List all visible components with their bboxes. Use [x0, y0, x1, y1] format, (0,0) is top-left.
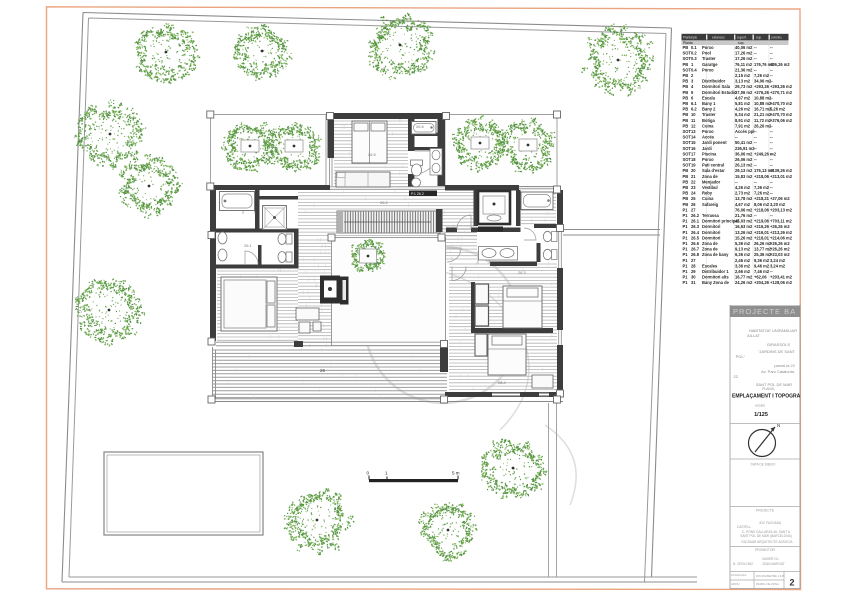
svg-text:26,06 m2: 26,06 m2	[735, 157, 753, 162]
svg-text:7,26 m2: 7,26 m2	[754, 73, 770, 78]
svg-text:29,73 m2: 29,73 m2	[735, 84, 753, 89]
svg-text:PB: PB	[683, 84, 689, 89]
svg-text:PROJECTE: PROJECTE	[756, 509, 775, 513]
svg-text:26.3: 26.3	[691, 224, 700, 229]
svg-text:sup.: sup.	[756, 35, 762, 39]
svg-text:CASTELL: CASTELL	[737, 525, 751, 529]
svg-text:26.2: 26.2	[691, 213, 700, 218]
svg-text:+213,26 m2: +213,26 m2	[770, 230, 793, 235]
svg-text:PB: PB	[683, 179, 689, 184]
svg-text:14: 14	[691, 135, 696, 140]
svg-text:9,46 m2: 9,46 m2	[754, 263, 770, 268]
svg-text:7,36 m2: 7,36 m2	[754, 185, 770, 190]
svg-text:P1: P1	[683, 230, 689, 235]
svg-text:4,67 m2: 4,67 m2	[735, 95, 751, 100]
svg-text:23: 23	[691, 185, 696, 190]
svg-text:Garatge: Garatge	[702, 62, 718, 67]
svg-text:+218,21: +218,21	[754, 196, 770, 201]
svg-text:+62,06: +62,06	[754, 275, 767, 280]
svg-text:PB: PB	[683, 79, 689, 84]
svg-text:16,63 m2: 16,63 m2	[735, 224, 753, 229]
svg-text:6,36 m2: 6,36 m2	[735, 252, 751, 257]
svg-text:+470,70 m2: +470,70 m2	[770, 112, 793, 117]
svg-text:6.1: 6.1	[691, 101, 697, 106]
svg-text:21,76 m2: 21,76 m2	[735, 213, 753, 218]
svg-text:P1: P1	[683, 241, 689, 246]
svg-text:Botiga: Botiga	[702, 118, 715, 123]
svg-text:Traster: Traster	[702, 112, 716, 117]
svg-text:Porxo: Porxo	[702, 67, 714, 72]
svg-text:N. GROU 982: N. GROU 982	[733, 562, 753, 566]
svg-text:2,15 m2: 2,15 m2	[735, 73, 751, 78]
svg-text:26.2: 26.2	[380, 200, 389, 205]
svg-text:7,26 m2: 7,26 m2	[754, 191, 770, 196]
svg-text:22: 22	[734, 374, 739, 379]
svg-text:13: 13	[691, 129, 696, 134]
svg-text:17: 17	[691, 151, 696, 156]
svg-text:P1: P1	[683, 207, 689, 212]
svg-text:26: 26	[691, 202, 696, 207]
svg-text:12: 12	[691, 123, 696, 128]
svg-text:36,06 m2: 36,06 m2	[735, 151, 753, 156]
svg-text:Zona de: Zona de	[702, 247, 718, 252]
svg-text:PB: PB	[683, 45, 689, 50]
svg-text:PLANOL: PLANOL	[762, 387, 775, 391]
svg-text:DIN MILIMETRE 1:125: DIN MILIMETRE 1:125	[756, 574, 785, 578]
svg-text:26.4: 26.4	[691, 230, 700, 235]
svg-text:constru.: constru.	[771, 35, 782, 39]
svg-text:+216,26: +216,26	[754, 224, 770, 229]
svg-text:8,91 m2: 8,91 m2	[735, 118, 751, 123]
svg-text:31: 31	[691, 280, 696, 285]
svg-text:+470,70 m2: +470,70 m2	[770, 101, 793, 106]
svg-text:Cuina: Cuina	[702, 123, 714, 128]
svg-text:26.1: 26.1	[691, 219, 700, 224]
svg-text:XAVIER GL.: XAVIER GL.	[762, 557, 780, 561]
svg-text:PROMOTOR: PROMOTOR	[755, 548, 775, 552]
svg-text:estances: estances	[712, 35, 725, 39]
svg-text:+703,11 m2: +703,11 m2	[770, 219, 792, 224]
svg-text:26.4: 26.4	[498, 380, 507, 385]
svg-text:+139,26 m2: +139,26 m2	[770, 168, 793, 173]
svg-text:2,66 m2: 2,66 m2	[735, 269, 751, 274]
svg-text:PB: PB	[683, 191, 689, 196]
svg-text:AILLAT: AILLAT	[747, 333, 761, 338]
svg-text:5 m: 5 m	[452, 471, 460, 476]
svg-text:PB: PB	[683, 123, 689, 128]
svg-text:18: 18	[691, 157, 696, 162]
svg-text:Safareig: Safareig	[702, 202, 719, 207]
svg-text:PB: PB	[683, 73, 689, 78]
svg-text:+218,01: +218,01	[754, 235, 770, 240]
svg-text:Accés: Accés	[702, 135, 715, 140]
svg-text:Bany 1: Bany 1	[702, 101, 716, 106]
svg-text:PB: PB	[683, 62, 689, 67]
svg-text:JOAN MARGAT: JOAN MARGAT	[762, 562, 785, 566]
svg-text:30: 30	[691, 275, 696, 280]
svg-text:236,91 m2: 236,91 m2	[735, 146, 755, 151]
svg-text:0.3: 0.3	[691, 56, 697, 61]
svg-text:PB: PB	[683, 90, 689, 95]
svg-text:+214,06 m2: +214,06 m2	[770, 235, 793, 240]
svg-text:SANT POL DE MAR (BARCELONA): SANT POL DE MAR (BARCELONA)	[740, 534, 792, 538]
svg-text:Distribuidor 1: Distribuidor 1	[702, 269, 729, 274]
svg-text:7,46 m2: 7,46 m2	[754, 269, 770, 274]
svg-text:15,26 m2: 15,26 m2	[735, 235, 753, 240]
svg-text:+219,06: +219,06	[754, 219, 770, 224]
svg-text:PB: PB	[683, 174, 689, 179]
svg-text:A3 ESCALA: A3 ESCALA	[731, 573, 746, 577]
svg-text:Distribuidor: Distribuidor	[702, 79, 726, 84]
svg-text:2,46 m2: 2,46 m2	[735, 258, 751, 263]
svg-text:Cuina: Cuina	[702, 196, 714, 201]
svg-text:9,13 m2: 9,13 m2	[735, 247, 751, 252]
svg-text:26.8: 26.8	[691, 252, 700, 257]
svg-text:Zona de: Zona de	[702, 174, 718, 179]
svg-text:21: 21	[691, 174, 696, 179]
svg-text:Escala: Escala	[702, 95, 716, 100]
svg-text:26.6: 26.6	[416, 124, 425, 129]
svg-text:PROJECTE BA: PROJECTE BA	[733, 307, 796, 316]
svg-text:+26,26 m2: +26,26 m2	[770, 247, 790, 252]
svg-text:Porxo: Porxo	[702, 45, 714, 50]
svg-text:17,26 m2: 17,26 m2	[735, 56, 753, 61]
svg-text:+23,03 m2: +23,03 m2	[770, 252, 790, 257]
svg-text:+26,26 m2: +26,26 m2	[770, 224, 790, 229]
svg-text:Dormitori principal: Dormitori principal	[702, 219, 739, 224]
svg-text:+293,26: +293,26	[754, 84, 770, 89]
svg-text:Pool: Pool	[702, 51, 711, 56]
svg-text:+276,06 m2: +276,06 m2	[770, 118, 793, 123]
svg-text:Reby: Reby	[702, 191, 713, 196]
svg-text:16,77 m2: 16,77 m2	[735, 275, 753, 280]
svg-text:28: 28	[691, 263, 696, 268]
svg-text:19: 19	[691, 163, 696, 168]
svg-text:P1: P1	[683, 224, 689, 229]
svg-text:10: 10	[691, 112, 696, 117]
svg-text:17,26 m2: 17,26 m2	[735, 51, 753, 56]
svg-text:PB: PB	[683, 112, 689, 117]
svg-text:P1: P1	[683, 269, 689, 274]
svg-text:superf.: superf.	[737, 35, 747, 39]
svg-text:parcel.la 22: parcel.la 22	[774, 363, 795, 368]
svg-text:Menjador: Menjador	[702, 179, 721, 184]
svg-text:PB: PB	[683, 107, 689, 112]
svg-text:20: 20	[691, 168, 696, 173]
svg-text:26.9: 26.9	[368, 152, 377, 157]
svg-text:+128,06 m2: +128,06 m2	[770, 280, 793, 285]
svg-text:40,06 m2: 40,06 m2	[735, 45, 753, 50]
svg-text:24: 24	[691, 191, 696, 196]
svg-text:5,36 m2: 5,36 m2	[735, 241, 751, 246]
svg-text:escala: escala	[755, 404, 765, 408]
svg-text:26,13 m2: 26,13 m2	[735, 163, 753, 168]
svg-text:+203,13 m2: +203,13 m2	[770, 207, 793, 212]
svg-text:Dormitori Sala: Dormitori Sala	[702, 84, 731, 89]
svg-text:+276,26: +276,26	[754, 90, 770, 95]
svg-text:JOC FACHADA: JOC FACHADA	[759, 521, 782, 525]
svg-text:26.1: 26.1	[244, 243, 253, 248]
svg-text:Dormitori Estudio: Dormitori Estudio	[702, 90, 737, 95]
svg-text:11: 11	[691, 118, 696, 123]
svg-text:PB: PB	[683, 118, 689, 123]
svg-text:26.7: 26.7	[691, 247, 700, 252]
svg-text:2,73 m2: 2,73 m2	[735, 191, 751, 196]
svg-text:+36,26 m2: +36,26 m2	[770, 62, 790, 67]
svg-text:Pati central: Pati central	[702, 163, 724, 168]
svg-text:"JARDINS DE SANT: "JARDINS DE SANT	[758, 349, 796, 354]
svg-text:0.2: 0.2	[691, 51, 697, 56]
svg-text:POL": POL"	[736, 354, 746, 359]
svg-text:P1: P1	[683, 258, 689, 263]
svg-text:N: N	[777, 423, 780, 428]
svg-text:+213,01 m2: +213,01 m2	[770, 174, 793, 179]
svg-text:P1: P1	[683, 252, 689, 257]
svg-text:Dormitori: Dormitori	[702, 230, 720, 235]
svg-text:Piscina: Piscina	[702, 151, 717, 156]
svg-text:PB: PB	[683, 95, 689, 100]
svg-text:+27,06 m2: +27,06 m2	[770, 196, 790, 201]
svg-text:1/125: 1/125	[754, 412, 768, 418]
svg-text:27,06 m2: 27,06 m2	[735, 90, 753, 95]
svg-text:4,26 m2: 4,26 m2	[735, 107, 751, 112]
svg-text:+218,06: +218,06	[754, 207, 770, 212]
svg-text:25: 25	[691, 196, 696, 201]
svg-text:Porxo: Porxo	[702, 129, 714, 134]
svg-text:PB: PB	[683, 196, 689, 201]
svg-text:6.2: 6.2	[691, 107, 697, 112]
svg-text:Porxo: Porxo	[702, 157, 714, 162]
svg-text:26.3: 26.3	[518, 270, 527, 275]
svg-text:13,26 m2: 13,26 m2	[735, 230, 753, 235]
svg-text:Terrassa: Terrassa	[702, 213, 719, 218]
svg-text:P1: P1	[683, 219, 689, 224]
svg-text:29,13 m2: 29,13 m2	[735, 168, 753, 173]
svg-text:Dormitori: Dormitori	[702, 235, 720, 240]
svg-text:5,26 m2: 5,26 m2	[770, 107, 786, 112]
svg-text:+26,26 m2: +26,26 m2	[770, 241, 790, 246]
svg-text:+293,26 m2: +293,26 m2	[770, 84, 793, 89]
svg-text:GIRASSOLS: GIRASSOLS	[767, 342, 790, 347]
svg-text:Bany Zona de: Bany Zona de	[702, 280, 730, 285]
svg-text:3,13 m2: 3,13 m2	[735, 79, 751, 84]
svg-text:76,11 m2: 76,11 m2	[735, 62, 753, 67]
svg-text:6,34 m2: 6,34 m2	[735, 112, 751, 117]
svg-text:26.6: 26.6	[691, 241, 700, 246]
svg-text:Zona de bany: Zona de bany	[702, 252, 729, 257]
svg-text:P.1 26.2: P.1 26.2	[411, 192, 424, 196]
svg-text:3,36 m2: 3,36 m2	[735, 263, 751, 268]
svg-text:9,36 m2: 9,36 m2	[754, 258, 770, 263]
svg-text:Jardi ponent: Jardi ponent	[702, 140, 727, 145]
svg-text:PB: PB	[683, 168, 689, 173]
svg-text:Escales: Escales	[702, 263, 718, 268]
svg-text:Vestibul: Vestibul	[702, 185, 718, 190]
svg-text:+249,26 m2: +249,26 m2	[754, 151, 777, 156]
svg-text:13,78 m2: 13,78 m2	[735, 196, 753, 201]
svg-text:Av. Parc Catalonia,: Av. Parc Catalonia,	[761, 369, 795, 374]
svg-text:2: 2	[789, 578, 794, 588]
svg-text:EMPLAÇAMENT I TOPOGRA: EMPLAÇAMENT I TOPOGRA	[732, 394, 801, 400]
svg-text:3,24 m2: 3,24 m2	[770, 258, 786, 263]
svg-text:P1: P1	[683, 235, 689, 240]
svg-text:+203,41 m2: +203,41 m2	[770, 275, 793, 280]
svg-text:DATA DE DIBUIX: DATA DE DIBUIX	[751, 463, 777, 467]
svg-text:15,83 m2: 15,83 m2	[735, 174, 753, 179]
svg-text:22: 22	[691, 179, 696, 184]
svg-text:27: 27	[691, 258, 696, 263]
svg-text:21,36 m2: 21,36 m2	[735, 67, 753, 72]
svg-text:24,26 m2: 24,26 m2	[735, 280, 753, 285]
svg-text:ARXIU: ARXIU	[731, 582, 740, 586]
svg-text:P1: P1	[683, 213, 689, 218]
svg-text:Zona de: Zona de	[702, 241, 718, 246]
svg-text:0.1: 0.1	[691, 45, 697, 50]
svg-text:0.4: 0.4	[691, 67, 697, 72]
svg-text:+204,26: +204,26	[754, 280, 770, 285]
svg-text:Dormitori: Dormitori	[702, 224, 720, 229]
svg-text:27: 27	[691, 207, 696, 212]
svg-text:P1: P1	[683, 263, 689, 268]
svg-text:50,41 m2: 50,41 m2	[735, 140, 753, 145]
svg-text:P1: P1	[683, 275, 689, 280]
svg-text:4,26 m2: 4,26 m2	[735, 185, 751, 190]
svg-text:26.5: 26.5	[691, 235, 700, 240]
svg-text:16: 16	[691, 146, 696, 151]
svg-text:+218,06: +218,06	[754, 174, 770, 179]
svg-text:PB: PB	[683, 185, 689, 190]
svg-text:3,24 m2: 3,24 m2	[770, 263, 786, 268]
svg-text:P1: P1	[683, 280, 689, 285]
svg-text:Accés ppl: Accés ppl	[735, 129, 754, 134]
svg-text:PERFIL DE ZONA: PERFIL DE ZONA	[756, 582, 779, 586]
svg-text:FACSAAR ARQUITECTE ASSOCIA: FACSAAR ARQUITECTE ASSOCIA	[741, 540, 793, 544]
svg-text:PB: PB	[683, 202, 689, 207]
svg-text:Bany 2: Bany 2	[702, 107, 716, 112]
svg-text:+270,71 m2: +270,71 m2	[770, 90, 793, 95]
svg-text:Traster: Traster	[702, 56, 716, 61]
svg-text:Sala d'estar: Sala d'estar	[702, 168, 725, 173]
svg-text:+216,01: +216,01	[754, 230, 770, 235]
svg-text:29: 29	[691, 269, 696, 274]
svg-text:4,67 m2: 4,67 m2	[735, 202, 751, 207]
svg-text:7,91 m2: 7,91 m2	[735, 123, 751, 128]
svg-text:5,81 m2: 5,81 m2	[735, 101, 751, 106]
svg-text:8,06 m2: 8,06 m2	[754, 202, 770, 207]
svg-text:76,06 m2: 76,06 m2	[735, 207, 753, 212]
svg-text:Planta/pis: Planta/pis	[683, 35, 697, 39]
svg-text:Jardi: Jardi	[702, 146, 712, 151]
svg-text:PB: PB	[683, 101, 689, 106]
svg-text:P1: P1	[683, 247, 689, 252]
svg-text:3,20 m2: 3,20 m2	[770, 202, 786, 207]
svg-text:45,03 m2: 45,03 m2	[735, 219, 753, 224]
svg-text:26: 26	[320, 368, 326, 373]
svg-text:Dormitori alts: Dormitori alts	[702, 275, 729, 280]
svg-text:15: 15	[691, 140, 696, 145]
